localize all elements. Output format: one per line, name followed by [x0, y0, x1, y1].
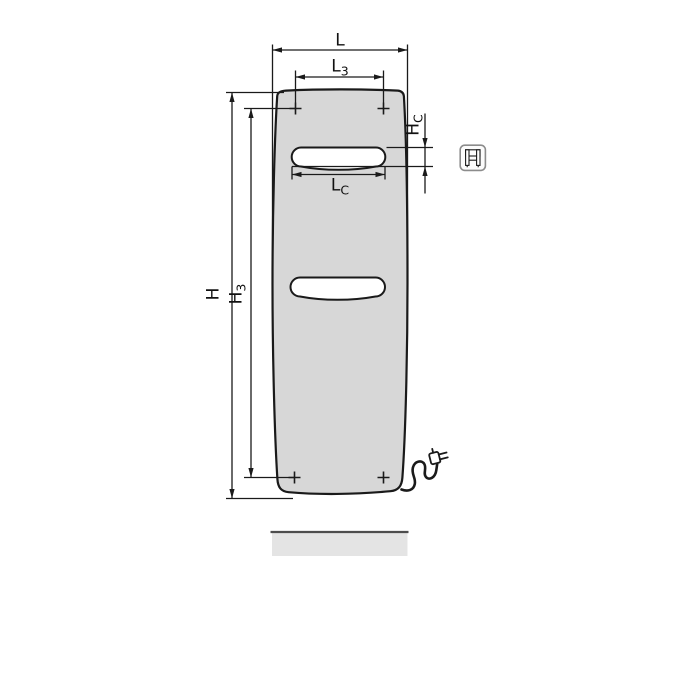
arrowhead — [398, 47, 408, 52]
power-cord — [402, 461, 438, 490]
dim-label-LC: LC — [331, 177, 349, 197]
drawing-page: L L3 LC H H3 HC — [0, 0, 700, 700]
arrowhead — [248, 468, 253, 478]
plug-prong — [440, 457, 448, 459]
plug-head — [428, 446, 449, 465]
arrowhead — [422, 167, 427, 177]
arrowhead — [229, 489, 234, 499]
floor-fill — [272, 533, 408, 556]
icon-frame — [460, 145, 485, 170]
icon-radiator-left-bar — [466, 150, 469, 166]
floor-strip — [271, 532, 409, 556]
dim-label-L: L — [335, 32, 344, 52]
arrowhead — [296, 74, 306, 79]
arrowhead — [273, 47, 283, 52]
arrowhead — [422, 138, 427, 148]
plug-prong — [439, 453, 447, 455]
dimensional-drawing-canvas — [0, 0, 700, 700]
arrowhead — [229, 93, 234, 103]
icon-radiator-right-bar — [477, 150, 480, 166]
dim-label-H: H — [205, 288, 225, 301]
arrowhead — [248, 109, 253, 119]
towel-slot-middle — [291, 278, 386, 300]
dim-label-L3: L3 — [331, 58, 348, 78]
power-plug-icon — [402, 446, 449, 491]
plug-pin — [432, 449, 433, 453]
arrowhead — [374, 74, 384, 79]
dim-label-HC: HC — [405, 114, 425, 136]
radiator-panel — [273, 89, 408, 494]
electric-connection-icon — [460, 145, 485, 170]
dim-label-H3: H3 — [228, 284, 248, 305]
